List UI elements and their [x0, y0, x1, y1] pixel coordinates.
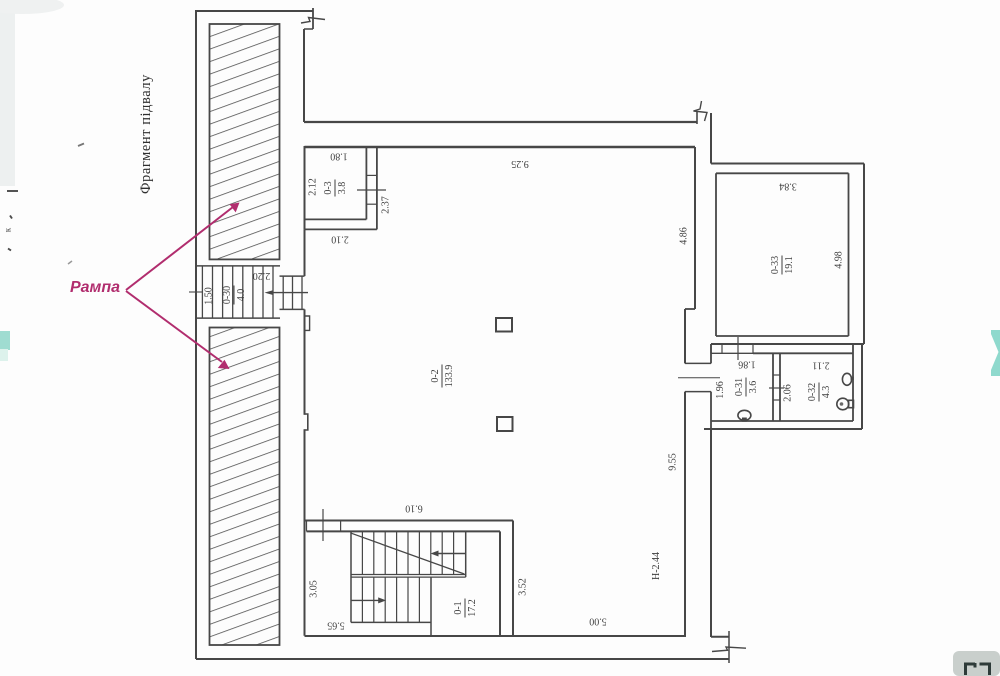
- svg-text:0-2: 0-2: [430, 369, 441, 382]
- svg-text:19.1: 19.1: [784, 256, 795, 274]
- svg-text:6.10: 6.10: [405, 503, 423, 514]
- svg-text:0-33: 0-33: [770, 256, 781, 274]
- svg-text:9.25: 9.25: [511, 158, 529, 169]
- svg-text:5.65: 5.65: [327, 620, 345, 631]
- svg-text:1.96: 1.96: [715, 381, 726, 399]
- svg-text:2.10: 2.10: [331, 234, 349, 245]
- svg-text:Н-2.44: Н-2.44: [651, 552, 662, 580]
- svg-text:4.0: 4.0: [236, 289, 247, 302]
- svg-text:5.00: 5.00: [589, 616, 607, 627]
- svg-text:1.80: 1.80: [330, 151, 348, 162]
- svg-text:Рампа: Рампа: [70, 279, 120, 296]
- svg-text:1.86: 1.86: [738, 359, 756, 370]
- svg-text:2.06: 2.06: [783, 384, 794, 402]
- svg-text:3.05: 3.05: [309, 580, 320, 598]
- svg-text:2.37: 2.37: [381, 196, 392, 214]
- svg-text:2.20: 2.20: [253, 270, 271, 281]
- svg-text:4.98: 4.98: [834, 251, 845, 269]
- svg-text:9.55: 9.55: [668, 453, 679, 471]
- svg-text:1.50: 1.50: [204, 287, 215, 305]
- svg-text:17.2: 17.2: [467, 599, 478, 617]
- svg-text:0-32: 0-32: [807, 383, 818, 401]
- svg-text:2.12: 2.12: [308, 178, 319, 196]
- svg-text:2.11: 2.11: [812, 360, 829, 371]
- svg-text:0-1: 0-1: [453, 601, 464, 614]
- svg-text:Фрагмент підвалу: Фрагмент підвалу: [138, 74, 154, 194]
- svg-text:к: к: [3, 227, 13, 232]
- svg-text:0-30: 0-30: [222, 286, 233, 304]
- svg-text:3.52: 3.52: [518, 578, 529, 596]
- svg-text:0-3: 0-3: [323, 181, 334, 194]
- svg-text:133.9: 133.9: [444, 365, 455, 388]
- svg-text:3.6: 3.6: [748, 381, 759, 394]
- svg-text:4.3: 4.3: [821, 386, 832, 399]
- svg-text:4.86: 4.86: [679, 227, 690, 245]
- svg-text:3.8: 3.8: [337, 182, 348, 195]
- svg-text:3.84: 3.84: [779, 181, 797, 192]
- svg-text:0-31: 0-31: [734, 378, 745, 396]
